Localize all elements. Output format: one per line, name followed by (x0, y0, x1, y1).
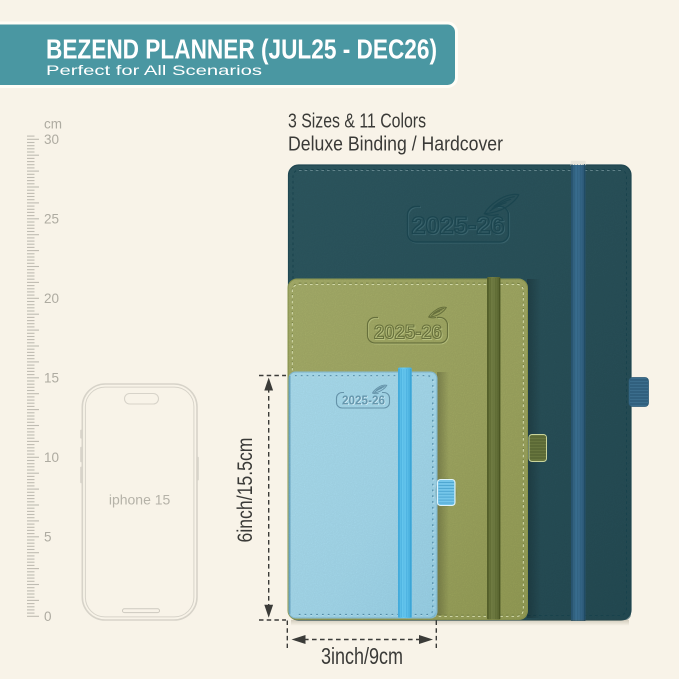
svg-text:0: 0 (44, 609, 52, 624)
svg-text:3inch/9cm: 3inch/9cm (321, 643, 403, 669)
svg-text:15: 15 (44, 370, 59, 385)
svg-text:2025-26: 2025-26 (412, 213, 505, 240)
svg-text:BEZEND PLANNER (JUL25 - DEC26): BEZEND PLANNER (JUL25 - DEC26) (46, 34, 437, 65)
svg-text:Perfect for All Scenarios: Perfect for All Scenarios (46, 62, 262, 78)
svg-text:2025-26: 2025-26 (374, 322, 442, 344)
svg-text:30: 30 (44, 132, 59, 147)
svg-text:iphone 15: iphone 15 (109, 492, 171, 508)
svg-text:10: 10 (44, 450, 59, 465)
svg-text:5: 5 (44, 529, 52, 544)
svg-text:6inch/15.5cm: 6inch/15.5cm (234, 438, 257, 543)
svg-text:2025-26: 2025-26 (342, 394, 385, 408)
svg-text:3 Sizes & 11 Colors: 3 Sizes & 11 Colors (288, 111, 426, 133)
svg-text:Deluxe Binding / Hardcover: Deluxe Binding / Hardcover (288, 134, 503, 156)
svg-text:25: 25 (44, 211, 59, 226)
svg-text:20: 20 (44, 291, 59, 306)
svg-text:cm: cm (44, 117, 62, 132)
